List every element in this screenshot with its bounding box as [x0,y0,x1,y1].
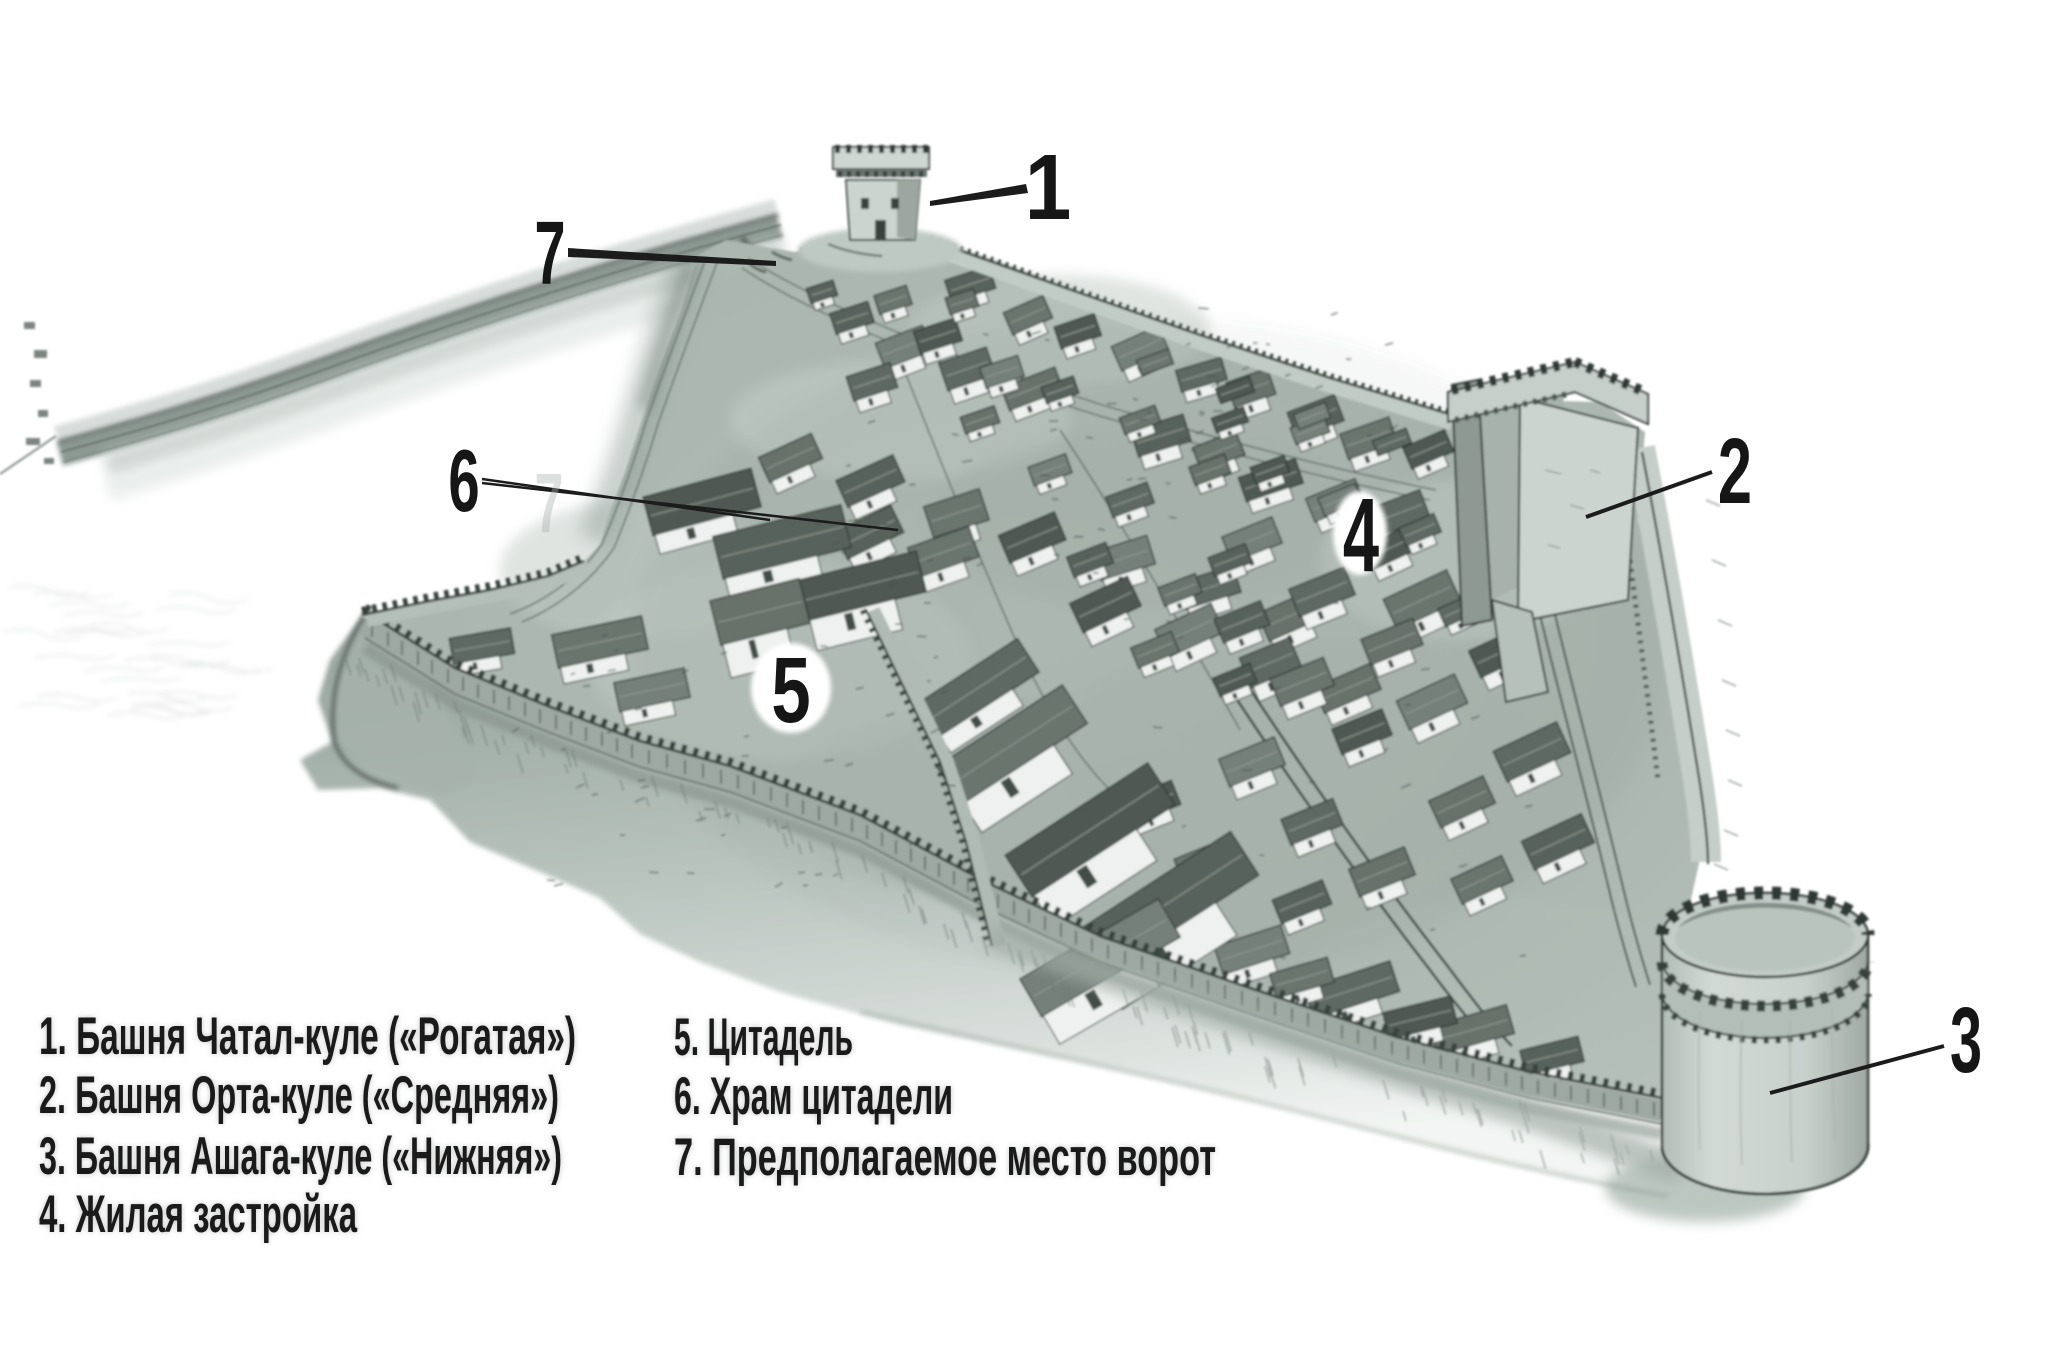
svg-text:1: 1 [1025,135,1072,239]
svg-text:2. Башня Орта-куле («Средняя»): 2. Башня Орта-куле («Средняя») [39,1066,559,1125]
svg-text:7: 7 [534,202,565,303]
svg-text:1. Башня Чатал-куле («Рогатая: 1. Башня Чатал-куле («Рогатая») [39,1007,576,1066]
svg-text:3: 3 [1950,989,1982,1092]
svg-text:6: 6 [448,431,479,530]
svg-text:4. Жилая застройка: 4. Жилая застройка [39,1185,357,1244]
svg-text:2: 2 [1718,419,1752,523]
svg-text:6. Храм цитадели: 6. Храм цитадели [674,1067,953,1126]
svg-text:3. Башня Ашага-куле («Нижняя»): 3. Башня Ашага-куле («Нижняя») [39,1127,562,1186]
svg-text:5: 5 [771,638,810,743]
svg-text:7. Предполагаемое место ворот: 7. Предполагаемое место ворот [674,1128,1216,1187]
svg-text:5. Цитадель: 5. Цитадель [674,1008,853,1067]
svg-text:7: 7 [535,456,564,550]
svg-text:4: 4 [1343,476,1380,594]
